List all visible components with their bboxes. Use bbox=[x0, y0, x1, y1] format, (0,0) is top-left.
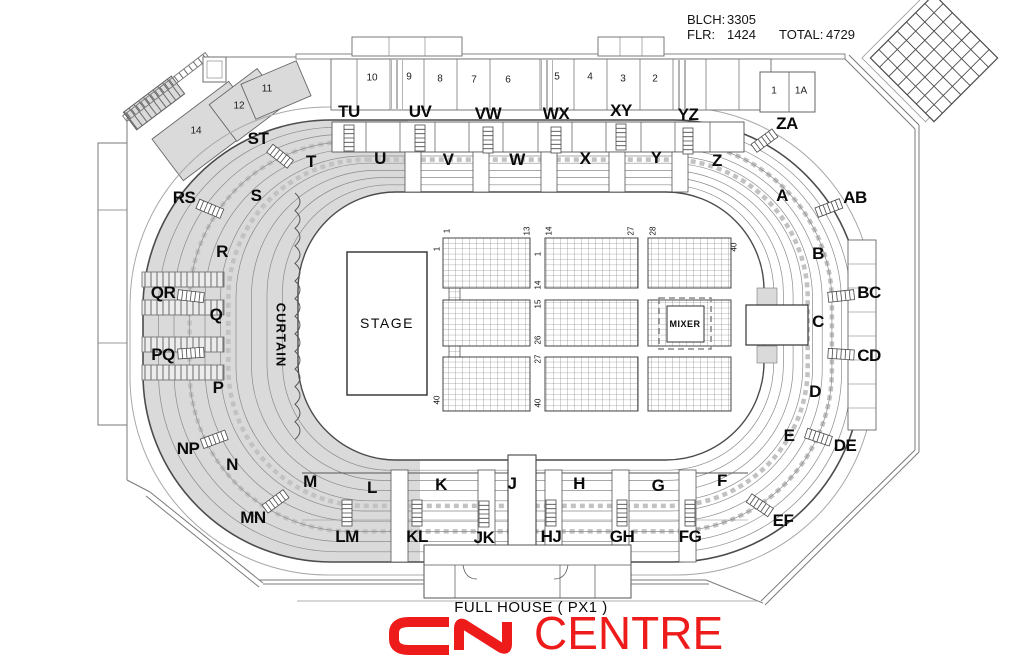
arena-floor-plan-drawing bbox=[0, 0, 1024, 663]
stair-hj bbox=[546, 500, 556, 526]
stair-yz bbox=[683, 128, 693, 154]
top-suites-strip bbox=[332, 122, 744, 152]
stair-pq bbox=[178, 347, 205, 359]
stair-vw bbox=[483, 127, 493, 153]
stair-cd bbox=[828, 348, 855, 360]
arena-seating-chart: BLCH: 3305 FLR: 1424 TOTAL: 4729 STAGE M… bbox=[0, 0, 1024, 663]
stair-tu bbox=[344, 125, 354, 151]
east-tunnel bbox=[746, 288, 808, 363]
stair-wx bbox=[551, 127, 561, 153]
top-aisles bbox=[405, 152, 688, 192]
stage-outline bbox=[347, 252, 427, 395]
ne-canopy bbox=[862, 0, 998, 126]
right-boxes-strip bbox=[848, 240, 876, 430]
mixer-outline bbox=[667, 306, 704, 342]
stair-uv bbox=[415, 125, 425, 151]
stair-lm bbox=[342, 500, 352, 526]
stair-jk bbox=[479, 501, 489, 527]
stair-fg bbox=[685, 500, 695, 526]
stair-gh bbox=[617, 500, 627, 526]
stair-kl bbox=[412, 500, 422, 526]
stair-xy bbox=[616, 124, 626, 150]
